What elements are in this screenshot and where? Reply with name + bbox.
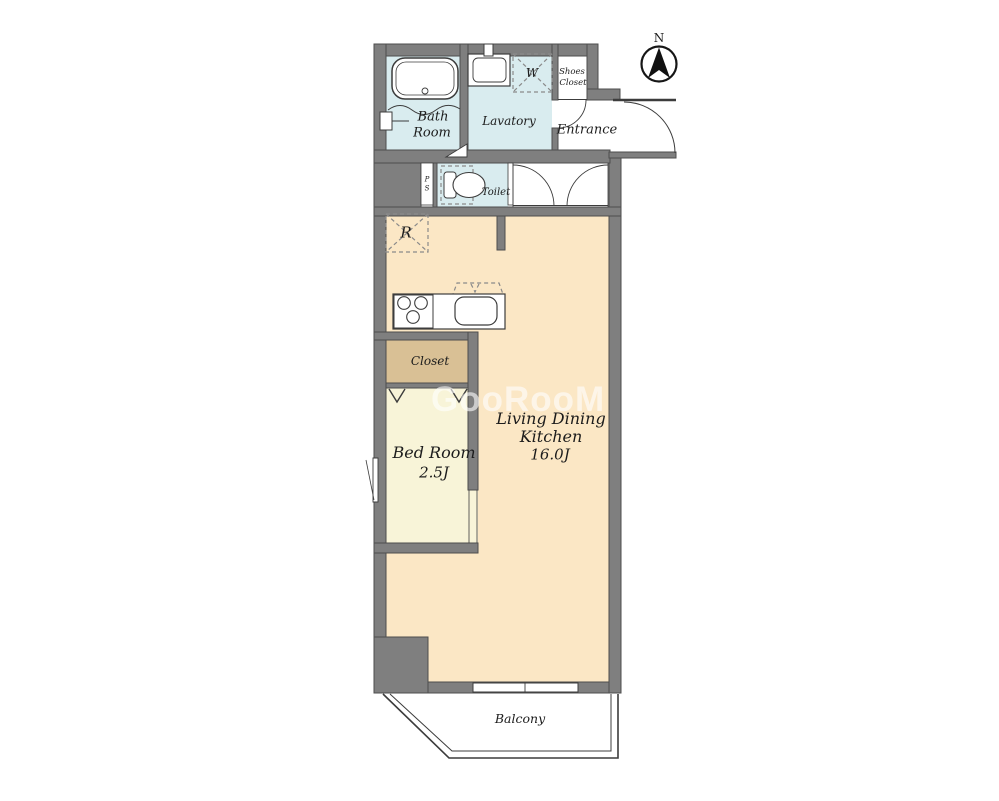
bath-room-label-line1: Bath: [418, 111, 449, 124]
pipe-space-label-line2: S: [425, 186, 430, 193]
wall-ldk-top: [374, 207, 621, 216]
wall-lavatory-entrance-upper: [552, 44, 558, 100]
shoes-closet-label-line2: Closet: [559, 79, 586, 88]
wall-shoes-right: [587, 44, 598, 89]
bedroom-window-leaf: [373, 458, 378, 502]
stove-burner-2: [415, 297, 428, 310]
bath-room-label-line2: Room: [413, 127, 451, 140]
stove-burner-1: [398, 297, 411, 310]
balcony-label: Balcony: [495, 713, 545, 726]
wall-bottom-left-column: [374, 637, 428, 693]
wall-entry-stub: [609, 152, 676, 158]
ldk-label-line2: Kitchen: [520, 429, 583, 445]
entrance-label: Entrance: [557, 124, 617, 137]
bedroom-door-opening: [468, 490, 478, 543]
site-watermark: GooRooM: [431, 380, 605, 420]
hallway-floor: [513, 163, 609, 207]
wall-bath-lavatory: [460, 44, 468, 150]
toilet-icon: [453, 173, 485, 198]
compass-icon: [642, 47, 677, 82]
compass-north-arrow: [648, 48, 670, 79]
closet-label: Closet: [411, 355, 449, 367]
wall-right: [609, 152, 621, 693]
bedroom-size-label: 2.5J: [419, 466, 449, 481]
ldk-size-label: 16.0J: [530, 448, 569, 463]
bathtub-drain: [422, 88, 428, 94]
wall-closet-top: [374, 332, 478, 340]
bedroom-label: Bed Room: [392, 445, 475, 461]
bath-counter-icon: [380, 112, 392, 130]
washer-label: W: [526, 67, 538, 79]
pipe-space-label-line1: P: [425, 177, 430, 184]
vanity-faucet: [484, 44, 493, 56]
wall-left: [374, 44, 386, 693]
toilet-label: Toilet: [482, 188, 510, 198]
lavatory-label: Lavatory: [482, 115, 536, 127]
front-door-swing-arc: [624, 102, 675, 153]
toilet-door-frame: [508, 163, 513, 205]
stove-burner-3: [407, 311, 420, 324]
wall-toilet-left-mass: [374, 163, 421, 207]
wall-mid-band: [374, 150, 610, 163]
wall-bedroom-bottom: [374, 543, 478, 553]
balcony-outer-line: [383, 694, 618, 758]
floorplan-page: Bath Room Lavatory W Shoes Closet Entran…: [0, 0, 999, 801]
refrigerator-label: R: [400, 226, 411, 241]
wall-entrance-top: [587, 89, 620, 100]
wall-kitchen-stub: [497, 216, 505, 250]
wall-ps-toilet: [433, 163, 437, 207]
balcony-window: [473, 683, 578, 692]
balcony-outline: [383, 694, 618, 758]
shoes-closet-label-line1: Shoes: [559, 68, 585, 77]
compass-north-label: N: [654, 32, 665, 44]
